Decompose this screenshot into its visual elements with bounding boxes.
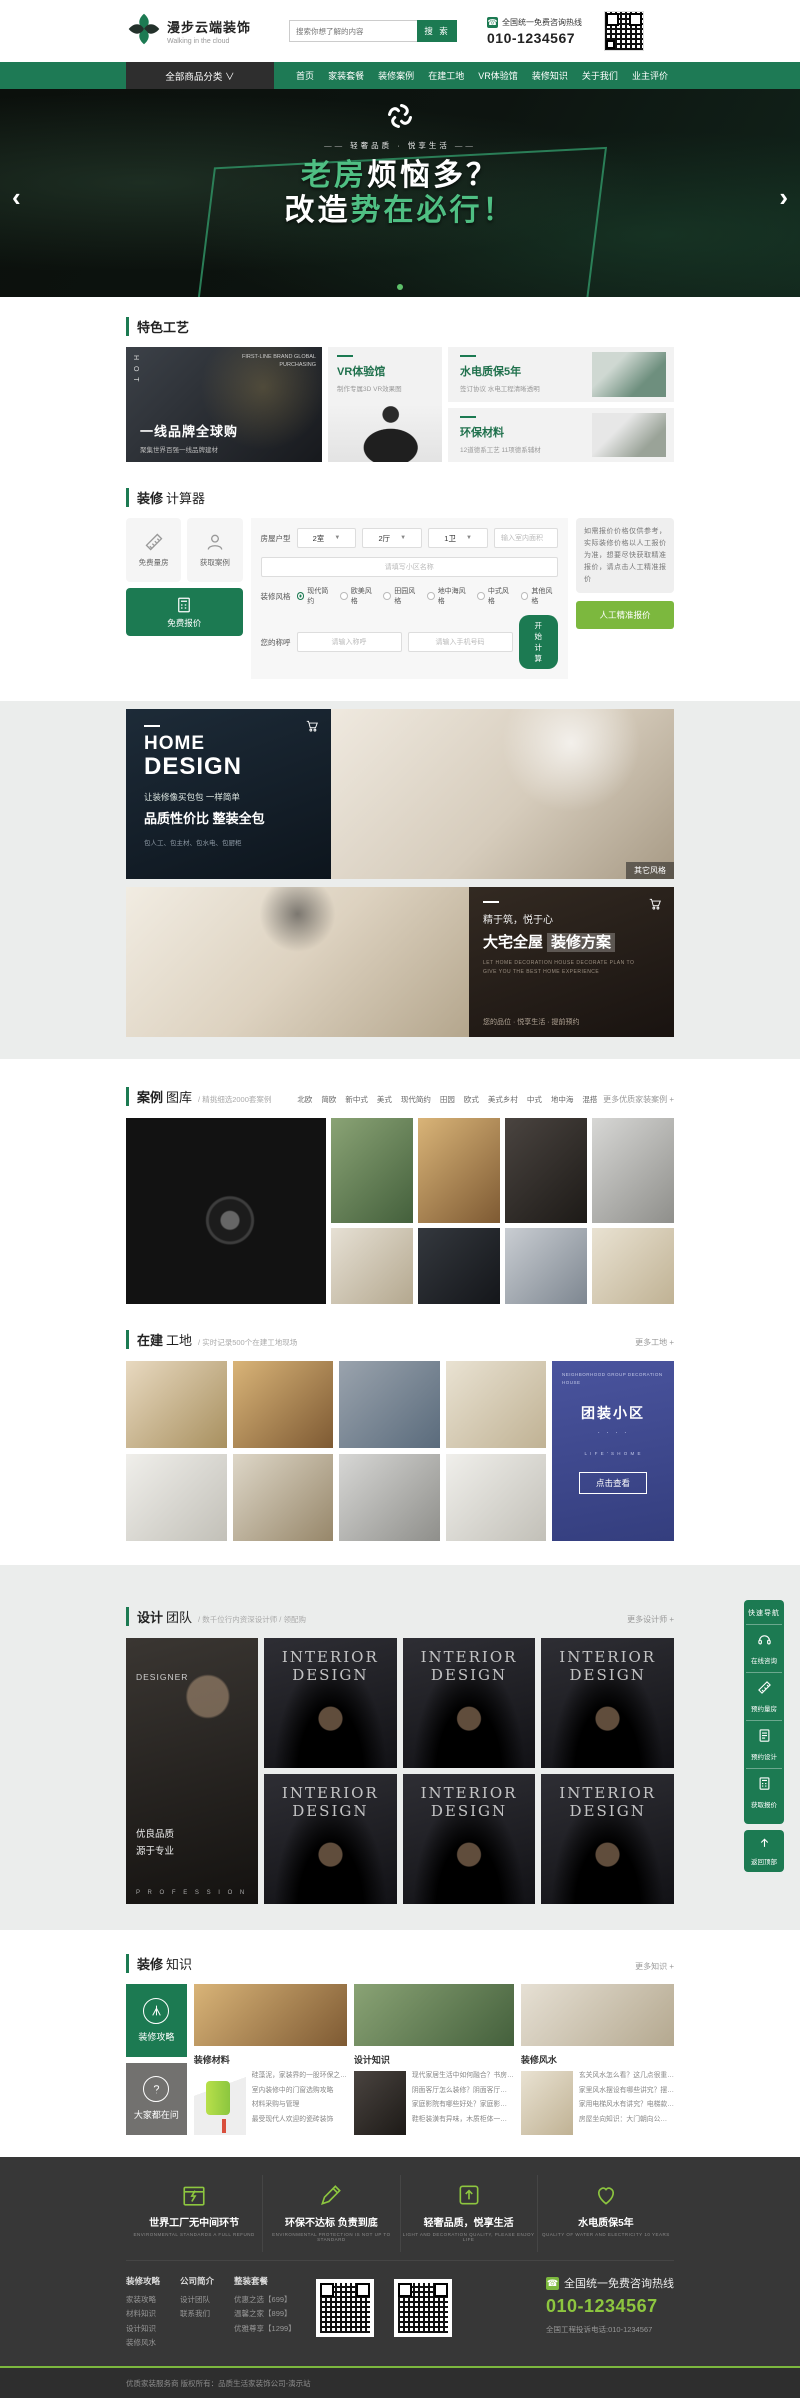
calculator-icon bbox=[175, 596, 193, 614]
knowledge-link[interactable]: 现代家居生活中如何融合？书房… bbox=[412, 2071, 514, 2082]
more-knowledge-link[interactable]: 更多知识 + bbox=[635, 1961, 674, 1972]
designer-portrait[interactable]: INTERIORDESIGN bbox=[264, 1638, 397, 1768]
arrow-up-icon bbox=[758, 1836, 771, 1849]
knowledge-photo[interactable] bbox=[354, 1984, 514, 2046]
footer-col-packages: 整装套餐 优惠之选【699】 温馨之家【899】 优雅尊享【1299】 bbox=[234, 2275, 296, 2350]
home-design-banner[interactable]: HOME DESIGN 让装修像买包包 一样简单 品质性价比 整装全包 包人工、… bbox=[126, 709, 674, 879]
footer-link[interactable]: 设计团队 bbox=[180, 2293, 214, 2307]
footer-link[interactable]: 优惠之选【699】 bbox=[234, 2293, 296, 2307]
whole-house-banner[interactable]: 精于筑，悦于心 大宅全屋装修方案 LET HOME DECORATION HOU… bbox=[126, 887, 674, 1037]
section-title-calculator: 装修计算器 bbox=[126, 488, 205, 507]
knowledge-link[interactable]: 房屋坐向知识：大门朝向公… bbox=[579, 2115, 674, 2126]
knowledge-photo[interactable] bbox=[194, 1984, 347, 2046]
footer-link[interactable]: 家装攻略 bbox=[126, 2293, 160, 2307]
view-details-button[interactable]: 点击查看 bbox=[579, 1472, 647, 1494]
footer-link[interactable]: 优雅尊享【1299】 bbox=[234, 2322, 296, 2336]
footer-link[interactable]: 装修风水 bbox=[126, 2336, 160, 2350]
filter-mixed[interactable]: 混搭 bbox=[582, 1094, 597, 1105]
logo[interactable]: 漫步云端装饰 Walking in the cloud bbox=[126, 11, 251, 52]
logo-icon bbox=[126, 11, 162, 52]
ruler-icon bbox=[757, 1680, 772, 1695]
filter-mediterranean[interactable]: 地中海 bbox=[551, 1094, 574, 1105]
footer-hotline-label: 全国统一免费咨询热线 bbox=[564, 2275, 674, 2291]
filter-european[interactable]: 欧式 bbox=[464, 1094, 479, 1105]
group-decoration-card[interactable]: NEIGHBORHOOD GROUP DECORATION HOUSE 团装小区… bbox=[552, 1361, 674, 1541]
case-photo[interactable] bbox=[505, 1118, 587, 1223]
site-photo[interactable] bbox=[233, 1454, 334, 1541]
style-radio-pastoral[interactable]: 田园风格 bbox=[383, 586, 420, 606]
nav-item-sites[interactable]: 在建工地 bbox=[428, 69, 464, 82]
pen-document-icon bbox=[757, 1728, 772, 1743]
material-card-subtitle: 12道德系工艺 11项德系辅材 bbox=[460, 444, 584, 454]
brand-card-title: 一线品牌全球购 bbox=[140, 424, 238, 439]
name-input[interactable] bbox=[297, 632, 402, 652]
quicknav-book-design[interactable]: 预约设计 bbox=[746, 1721, 782, 1769]
free-measure-button[interactable]: 免费量房 bbox=[126, 518, 181, 582]
case-photo[interactable] bbox=[505, 1228, 587, 1304]
designer-portrait[interactable]: INTERIORDESIGN bbox=[264, 1774, 397, 1904]
footer-qr-code bbox=[394, 2279, 452, 2337]
banner1-photo: 其它风格 bbox=[331, 709, 674, 879]
style-radio-other[interactable]: 其他风格 bbox=[521, 586, 558, 606]
dash-decoration bbox=[483, 901, 499, 903]
copyright-bar: 优质家装服务商 版权所有：品质生活家装饰公司-演示站 bbox=[0, 2366, 800, 2398]
knowledge-link[interactable]: 家里风水摆设有哪些讲究？摆… bbox=[579, 2086, 674, 2097]
style-label: 装修风格 bbox=[261, 591, 291, 602]
copyright-text: 优质家装服务商 版权所有：品质生活家装饰公司-演示站 bbox=[126, 2368, 674, 2400]
banner1-line1: 让装修像买包包 一样简单 bbox=[144, 791, 331, 803]
cases-desc: / 精挑细选2000套案例 bbox=[198, 1094, 271, 1105]
designer-slogan: 优良品质源于专业 bbox=[136, 1826, 174, 1860]
filter-new-chinese[interactable]: 新中式 bbox=[345, 1094, 368, 1105]
get-case-button[interactable]: 获取案例 bbox=[187, 518, 242, 582]
feature-card-warranty[interactable]: 水电质保5年 签订协议 水电工程清晰透明 bbox=[448, 347, 674, 402]
nav-item-packages[interactable]: 家装套餐 bbox=[328, 69, 364, 82]
decoration-guide-tile[interactable]: 装修攻略 bbox=[126, 1984, 187, 2057]
calculator-icon bbox=[757, 1776, 772, 1791]
dash-decoration bbox=[460, 355, 476, 357]
knowledge-link[interactable]: 最受现代人欢迎的瓷砖装饰 bbox=[252, 2115, 347, 2126]
team-desc: / 数千位行内资深设计师 / 领配购 bbox=[198, 1614, 306, 1625]
hotline-number: 010-1234567 bbox=[487, 30, 582, 46]
banner1-line3: 包人工、包主材、包水电、包厨柜 bbox=[144, 837, 331, 847]
search-bar: 搜 索 bbox=[289, 20, 457, 42]
knowledge-col-title: 装修风水 bbox=[521, 2053, 674, 2066]
knowledge-section: 装修知识 更多知识 + 装修攻略 大家都在问 bbox=[0, 1930, 800, 2153]
headset-icon bbox=[757, 1632, 772, 1647]
logo-title: 漫步云端装饰 bbox=[167, 17, 251, 36]
carousel-next-arrow[interactable]: › bbox=[779, 184, 788, 210]
footer-feature-quality: 轻奢品质，悦享生活 LIGHT AND DECORATION QUALITY, … bbox=[401, 2175, 538, 2252]
sites-desc: / 实时记录500个在建工地现场 bbox=[198, 1337, 297, 1348]
heart-icon bbox=[538, 2182, 674, 2209]
case-filters: 北欧 简欧 新中式 美式 现代简约 田园 欧式 美式乡村 中式 地中海 混搭 bbox=[297, 1094, 597, 1105]
knowledge-col-title: 装修材料 bbox=[194, 2053, 347, 2066]
faq-tile[interactable]: 大家都在问 bbox=[126, 2063, 187, 2136]
section-title-team: 设计团队 bbox=[126, 1607, 192, 1626]
dash-decoration bbox=[460, 416, 476, 418]
header-hotline: ☎ 全国统一免费咨询热线 010-1234567 bbox=[487, 17, 582, 46]
features-section: 特色工艺 H O T FIRST-LINE BRAND GLOBAL PURCH… bbox=[0, 297, 800, 462]
filter-pastoral[interactable]: 田园 bbox=[440, 1094, 455, 1105]
site-photo[interactable] bbox=[126, 1454, 227, 1541]
hero-banner[interactable]: 轻奢品质 · 悦享生活 老房烦恼多？ 改造势在必行！ ‹ › bbox=[0, 89, 800, 297]
footer-link[interactable]: 设计知识 bbox=[126, 2322, 160, 2336]
hero-title-2: 改造势在必行！ bbox=[0, 194, 800, 229]
footer-col-guide: 装修攻略 家装攻略 材料知识 设计知识 装修风水 bbox=[126, 2275, 160, 2350]
card-title: 团装小区 bbox=[562, 1403, 664, 1423]
site-photo[interactable] bbox=[233, 1361, 334, 1448]
main-nav: 全部商品分类 ∨ 首页 家装套餐 装修案例 在建工地 VR体验馆 装修知识 关于… bbox=[0, 62, 800, 89]
style-radio-chinese[interactable]: 中式风格 bbox=[477, 586, 514, 606]
box-arrow-icon bbox=[401, 2182, 537, 2209]
filter-country[interactable]: 美式乡村 bbox=[488, 1094, 518, 1105]
filter-simple-euro[interactable]: 简欧 bbox=[321, 1094, 336, 1105]
warranty-card-image bbox=[592, 352, 666, 397]
knowledge-col-title: 设计知识 bbox=[354, 2053, 514, 2066]
more-designers-link[interactable]: 更多设计师 + bbox=[627, 1614, 674, 1625]
brand-card-subtitle: 聚集世界百强一线品牌建材 bbox=[140, 444, 238, 454]
dash-decoration bbox=[337, 355, 353, 357]
banner2-bottom-text: 您的品位 · 悦享生活 · 提前预约 bbox=[483, 1017, 579, 1027]
house-type-label: 房屋户型 bbox=[261, 533, 291, 544]
nav-item-vr[interactable]: VR体验馆 bbox=[478, 69, 518, 82]
card-english-caption: L I F E ' S H O M E bbox=[562, 1451, 664, 1456]
site-photo[interactable] bbox=[339, 1454, 440, 1541]
footer-feature-environment: 环保不达标 负责到底 ENVIRONMENTAL PROTECTION IS N… bbox=[263, 2175, 400, 2252]
knowledge-link[interactable]: 材料采购与管理 bbox=[252, 2100, 347, 2111]
filter-modern[interactable]: 现代简约 bbox=[401, 1094, 431, 1105]
quick-nav-sidebar: 快速导航 在线咨询 预约量房 预约设计 获取报价 返回顶部 bbox=[744, 1600, 784, 1872]
question-icon bbox=[143, 2076, 169, 2102]
free-quote-button[interactable]: 免费报价 bbox=[126, 588, 243, 636]
footer-qr-code bbox=[316, 2279, 374, 2337]
style-radio-western[interactable]: 欧美风格 bbox=[340, 586, 377, 606]
ruler-icon bbox=[144, 532, 164, 552]
hotline-label: 全国统一免费咨询热线 bbox=[502, 17, 582, 28]
knowledge-link[interactable]: 玄关风水怎么看？这几点很重… bbox=[579, 2071, 674, 2082]
warranty-card-subtitle: 签订协议 水电工程清晰透明 bbox=[460, 383, 584, 393]
designer-feature-card[interactable]: DESIGNER 优良品质源于专业 P R O F E S S I O N bbox=[126, 1638, 258, 1904]
header: 漫步云端装饰 Walking in the cloud 搜 索 ☎ 全国统一免费… bbox=[0, 0, 800, 62]
case-photo-large[interactable] bbox=[126, 1118, 326, 1304]
banner2-english: LET HOME DECORATION HOUSE DECORATE PLAN … bbox=[483, 959, 643, 976]
card-dots: · · · · bbox=[562, 1428, 664, 1437]
designer-portrait[interactable]: INTERIORDESIGN bbox=[541, 1774, 674, 1904]
section-title-knowledge: 装修知识 bbox=[126, 1954, 192, 1973]
banner2-title: 大宅全屋装修方案 bbox=[483, 931, 674, 952]
section-title-features: 特色工艺 bbox=[126, 317, 189, 336]
quote-note: 如需报价价格仅供参考，实际装修价格以人工报价为准，想要尽快获取精准报价，请点击人… bbox=[576, 518, 674, 593]
sites-section: 在建工地 / 实时记录500个在建工地现场 更多工地 + bbox=[0, 1304, 800, 1565]
category-dropdown[interactable]: 全部商品分类 ∨ bbox=[126, 62, 274, 89]
brand-corner-text: FIRST-LINE BRAND GLOBAL PURCHASING bbox=[236, 353, 316, 370]
footer-link[interactable]: 材料知识 bbox=[126, 2307, 160, 2321]
feature-card-material[interactable]: 环保材料 12道德系工艺 11项德系辅材 bbox=[448, 408, 674, 463]
section-title-sites: 在建工地 bbox=[126, 1330, 192, 1349]
banner2-photo bbox=[126, 887, 469, 1037]
site-photo[interactable] bbox=[446, 1454, 547, 1541]
quicknav-get-quote[interactable]: 获取报价 bbox=[746, 1769, 782, 1816]
case-photo[interactable] bbox=[592, 1228, 674, 1304]
filter-chinese[interactable]: 中式 bbox=[527, 1094, 542, 1105]
vr-card-title: VR体验馆 bbox=[337, 363, 433, 379]
banner1-title-home: HOME bbox=[144, 733, 331, 755]
compass-icon bbox=[143, 1998, 169, 2024]
person-icon bbox=[205, 532, 225, 552]
section-title-cases: 案例图库 bbox=[126, 1087, 192, 1106]
knowledge-thumb[interactable] bbox=[521, 2071, 573, 2135]
style-radio-modern[interactable]: 现代简约 bbox=[297, 586, 334, 606]
complaint-phone: 全国工程投诉电话:010-1234567 bbox=[546, 2324, 674, 2335]
designer-portrait[interactable]: INTERIORDESIGN bbox=[403, 1638, 536, 1768]
dash-decoration bbox=[144, 725, 160, 727]
room-select[interactable]: 2室▼ bbox=[297, 528, 357, 548]
factory-lightning-icon bbox=[126, 2182, 262, 2209]
more-cases-link[interactable]: 更多优质家装案例 + bbox=[603, 1094, 674, 1105]
case-photo[interactable] bbox=[331, 1118, 413, 1223]
phone-icon: ☎ bbox=[546, 2277, 559, 2290]
knowledge-thumb[interactable] bbox=[194, 2071, 246, 2135]
footer-hotline: ☎ 全国统一免费咨询热线 010-1234567 全国工程投诉电话:010-12… bbox=[546, 2275, 674, 2350]
footer-hotline-number: 010-1234567 bbox=[546, 2296, 674, 2317]
case-photo[interactable] bbox=[592, 1118, 674, 1223]
filter-nordic[interactable]: 北欧 bbox=[297, 1094, 312, 1105]
logo-subtitle: Walking in the cloud bbox=[167, 38, 251, 45]
hero-logo-icon bbox=[385, 101, 415, 136]
promo-banners: HOME DESIGN 让装修像买包包 一样简单 品质性价比 整装全包 包人工、… bbox=[0, 701, 800, 1059]
hall-select[interactable]: 2厅▼ bbox=[362, 528, 422, 548]
case-photo[interactable] bbox=[418, 1228, 500, 1304]
footer-feature-factory: 世界工厂无中间环节 ENVIRONMENTAL STANDARDS A FULL… bbox=[126, 2175, 263, 2252]
team-section: 设计团队 / 数千位行内资深设计师 / 领配购 更多设计师 + DESIGNER… bbox=[0, 1565, 800, 1930]
start-calculate-button[interactable]: 开始计算 bbox=[519, 615, 559, 669]
designer-portrait[interactable]: INTERIORDESIGN bbox=[403, 1774, 536, 1904]
filter-american[interactable]: 美式 bbox=[377, 1094, 392, 1105]
bath-select[interactable]: 1卫▼ bbox=[428, 528, 488, 548]
carousel-dot[interactable] bbox=[397, 284, 403, 290]
site-photo[interactable] bbox=[446, 1361, 547, 1448]
header-qr-code bbox=[604, 11, 644, 51]
footer-feature-warranty: 水电质保5年 QUALITY OF WATER AND ELECTRICITY … bbox=[538, 2175, 674, 2252]
cart-icon bbox=[648, 897, 662, 916]
community-input[interactable] bbox=[261, 557, 559, 577]
style-radio-mediterranean[interactable]: 地中海风格 bbox=[427, 586, 471, 606]
knowledge-link[interactable]: 室内装修中的门窗选购攻略 bbox=[252, 2086, 347, 2097]
quick-nav-title: 快速导航 bbox=[746, 1608, 782, 1625]
banner1-title-design: DESIGN bbox=[144, 753, 331, 781]
manual-quote-button[interactable]: 人工精准报价 bbox=[576, 601, 674, 629]
site-photo[interactable] bbox=[339, 1361, 440, 1448]
nav-item-cases[interactable]: 装修案例 bbox=[378, 69, 414, 82]
feature-card-vr[interactable]: VR体验馆 制作专属3D VR效果图 bbox=[328, 347, 442, 462]
search-button[interactable]: 搜 索 bbox=[417, 20, 457, 42]
warranty-card-title: 水电质保5年 bbox=[460, 363, 584, 379]
search-input[interactable] bbox=[289, 20, 417, 42]
banner1-line2: 品质性价比 整装全包 bbox=[144, 808, 331, 827]
feature-card-brand[interactable]: H O T FIRST-LINE BRAND GLOBAL PURCHASING… bbox=[126, 347, 322, 462]
area-input[interactable] bbox=[494, 528, 558, 548]
knowledge-link[interactable]: 鞋柜装潢有异味，木质柜体一… bbox=[412, 2115, 514, 2126]
case-photo[interactable] bbox=[331, 1228, 413, 1304]
footer-link[interactable]: 联系我们 bbox=[180, 2307, 214, 2321]
quote-form: 房屋户型 2室▼ 2厅▼ 1卫▼ 装修风格 现代简约 欧美风格 田园风格 地中海… bbox=[251, 518, 569, 679]
case-photo[interactable] bbox=[418, 1118, 500, 1223]
knowledge-link[interactable]: 家庭影院有哪些好处？家庭影… bbox=[412, 2100, 514, 2111]
nav-item-about[interactable]: 关于我们 bbox=[582, 69, 618, 82]
knowledge-link[interactable]: 家用电梯风水有讲究？电梯款… bbox=[579, 2100, 674, 2111]
name-label: 您的称呼 bbox=[261, 637, 291, 648]
vr-card-subtitle: 制作专属3D VR效果图 bbox=[337, 383, 433, 393]
phone-input[interactable] bbox=[408, 632, 513, 652]
banner1-style-tag[interactable]: 其它风格 bbox=[626, 862, 674, 879]
knowledge-photo[interactable] bbox=[521, 1984, 674, 2046]
cases-section: 案例图库 / 精挑细选2000套案例 北欧 简欧 新中式 美式 现代简约 田园 … bbox=[0, 1059, 800, 1304]
hero-tagline: 轻奢品质 · 悦享生活 bbox=[0, 140, 800, 151]
quicknav-book-measure[interactable]: 预约量房 bbox=[746, 1673, 782, 1721]
more-sites-link[interactable]: 更多工地 + bbox=[635, 1337, 674, 1348]
card-english-text: NEIGHBORHOOD GROUP DECORATION HOUSE bbox=[562, 1371, 664, 1387]
phone-icon: ☎ bbox=[487, 17, 498, 28]
nav-item-home[interactable]: 首页 bbox=[296, 69, 314, 82]
profession-label: P R O F E S S I O N bbox=[136, 1890, 247, 1896]
knowledge-link[interactable]: 硅藻泥，家装界的一股环保之… bbox=[252, 2071, 347, 2082]
knowledge-link[interactable]: 阴面客厅怎么装修？阴面客厅… bbox=[412, 2086, 514, 2097]
site-photo[interactable] bbox=[126, 1361, 227, 1448]
nav-item-reviews[interactable]: 业主评价 bbox=[632, 69, 668, 82]
designer-label: DESIGNER bbox=[136, 1672, 188, 1682]
pencil-icon bbox=[263, 2182, 399, 2209]
nav-item-knowledge[interactable]: 装修知识 bbox=[532, 69, 568, 82]
footer-link[interactable]: 温馨之家【899】 bbox=[234, 2307, 296, 2321]
knowledge-thumb[interactable] bbox=[354, 2071, 406, 2135]
banner2-slogan: 精于筑，悦于心 bbox=[483, 911, 674, 926]
calculator-section: 装修计算器 免费量房 获取案例 免费报价 bbox=[0, 462, 800, 693]
material-card-title: 环保材料 bbox=[460, 424, 584, 440]
carousel-prev-arrow[interactable]: ‹ bbox=[12, 184, 21, 210]
quicknav-online-consult[interactable]: 在线咨询 bbox=[746, 1625, 782, 1673]
material-card-image bbox=[592, 413, 666, 458]
footer-col-company: 公司简介 设计团队 联系我们 bbox=[180, 2275, 214, 2350]
cart-icon bbox=[305, 719, 319, 738]
hot-label: H O T bbox=[132, 355, 139, 384]
footer: 世界工厂无中间环节 ENVIRONMENTAL STANDARDS A FULL… bbox=[0, 2157, 800, 2398]
vr-person-image bbox=[328, 404, 442, 462]
hero-title-1: 老房烦恼多？ bbox=[0, 159, 800, 194]
back-to-top-button[interactable]: 返回顶部 bbox=[744, 1830, 784, 1872]
designer-portrait[interactable]: INTERIORDESIGN bbox=[541, 1638, 674, 1768]
